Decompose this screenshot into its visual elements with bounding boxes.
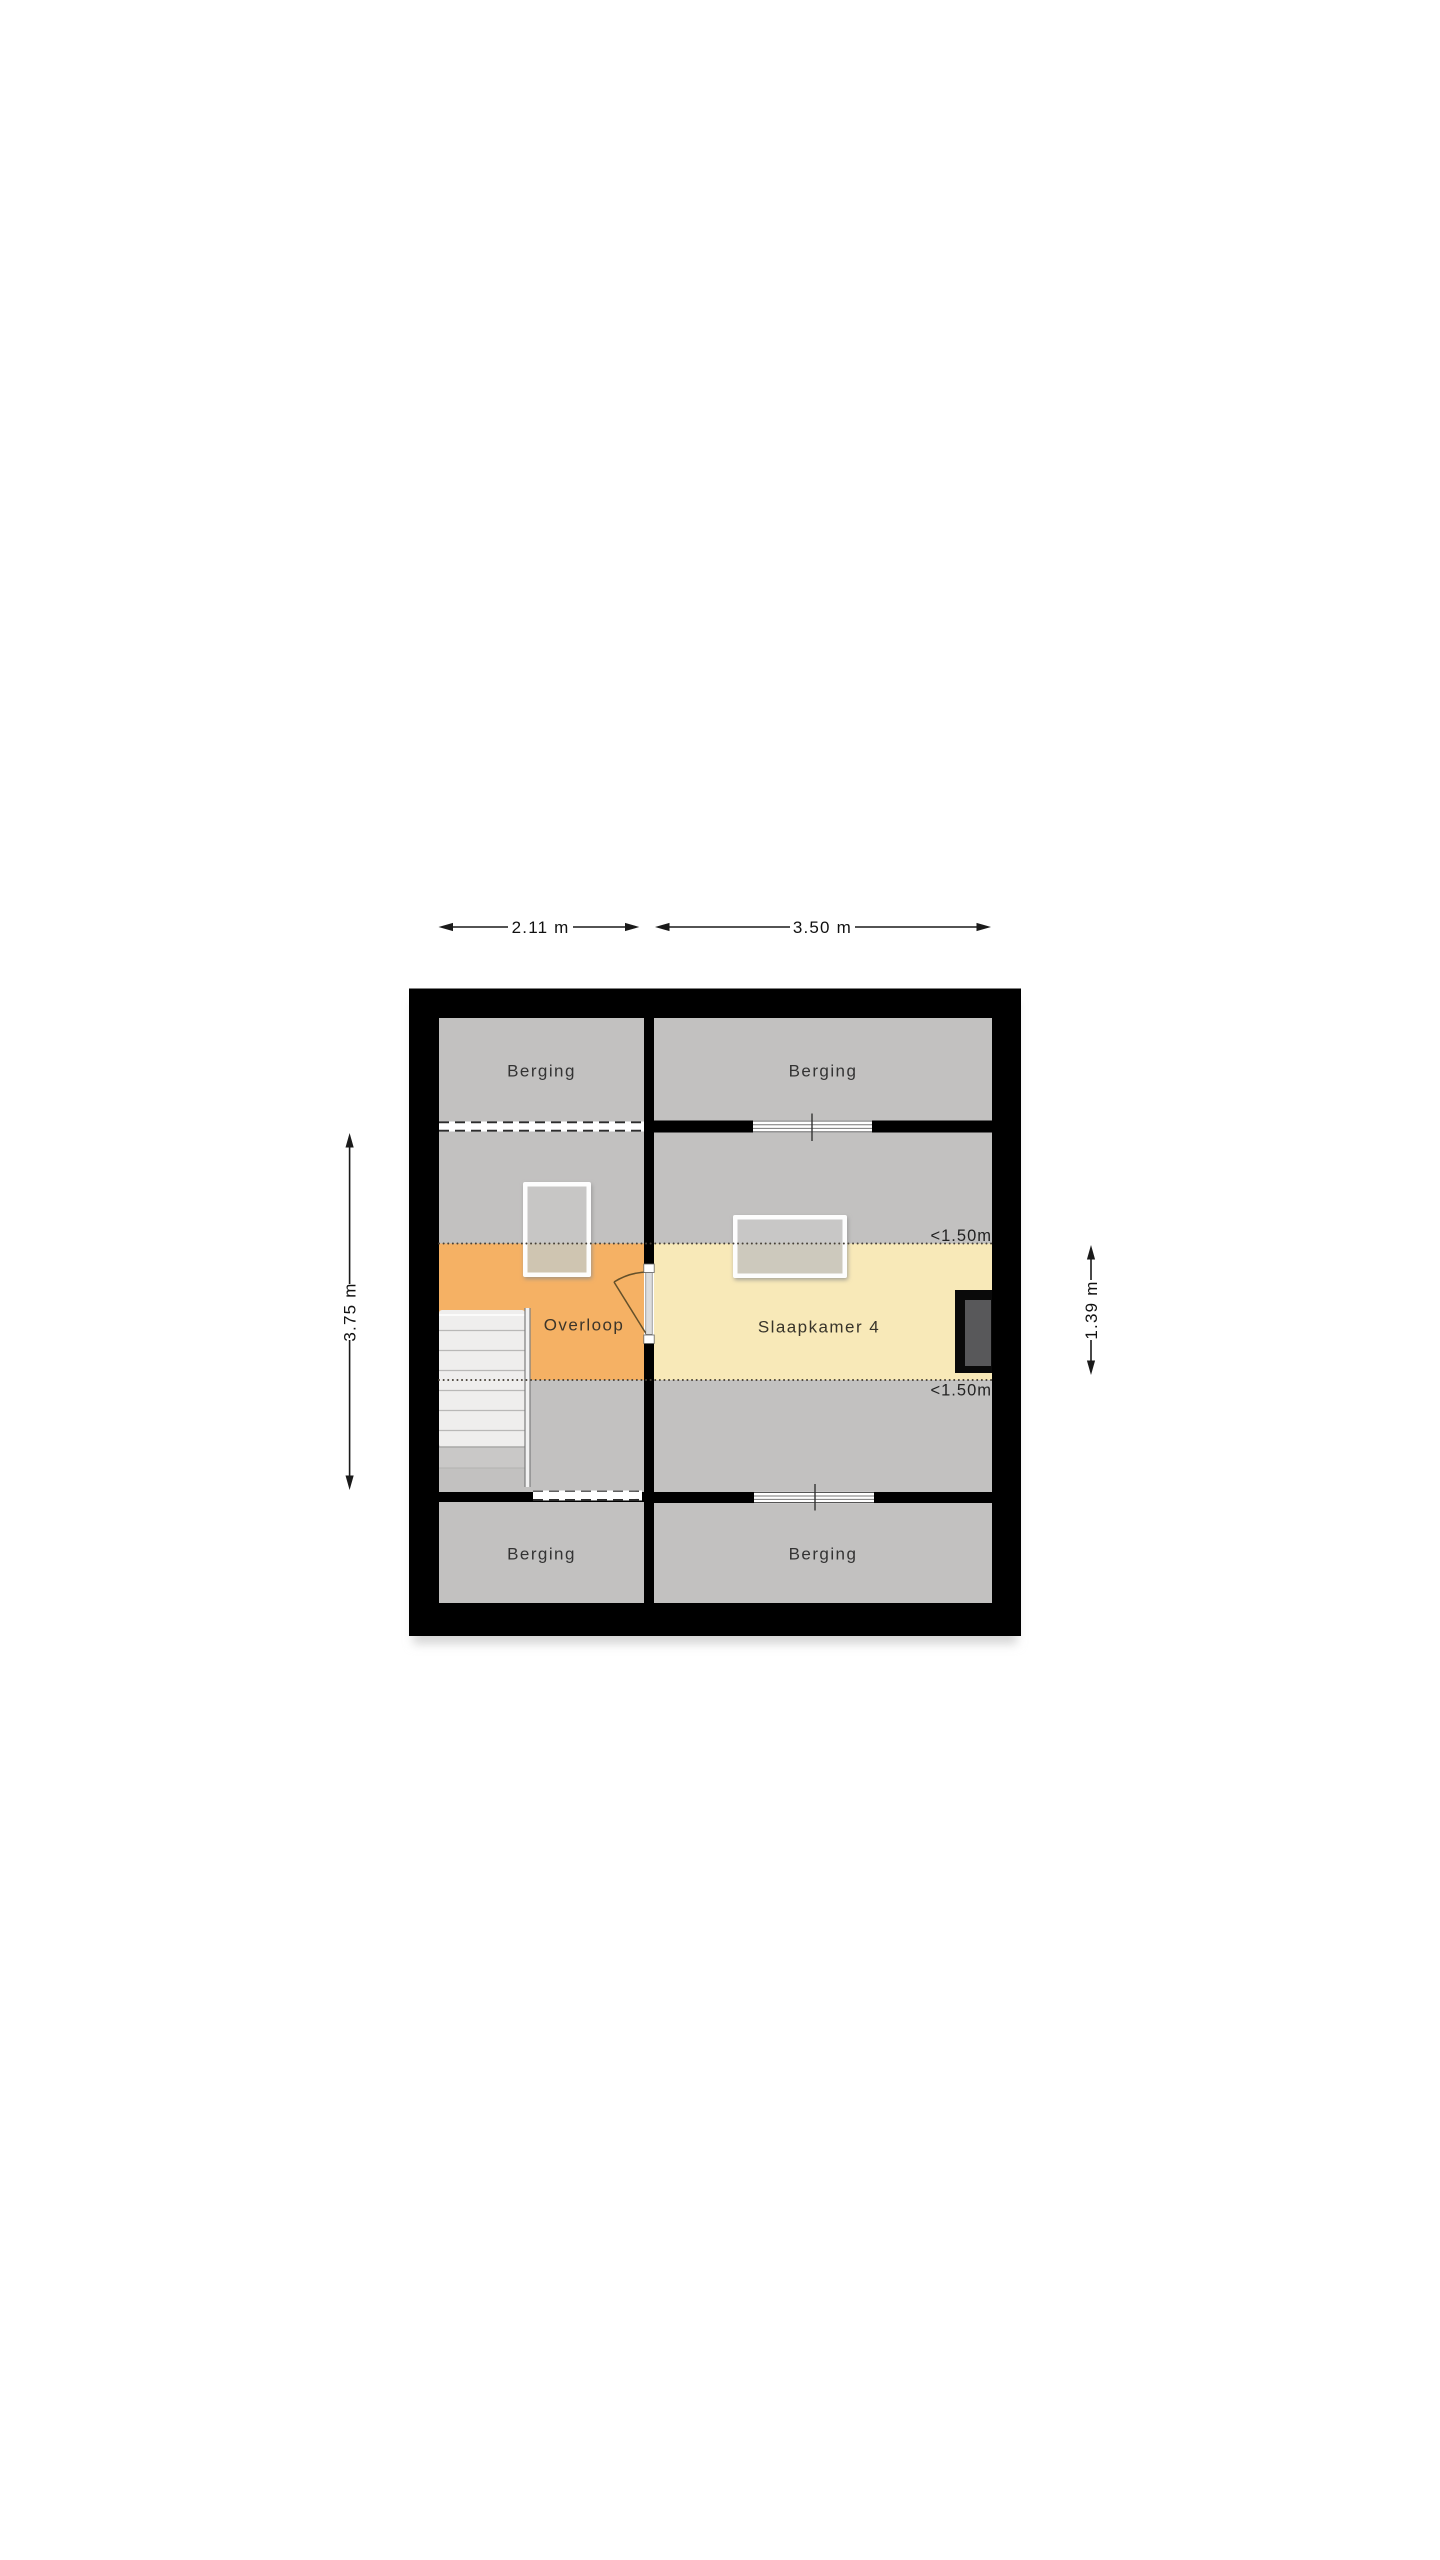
svg-text:Berging: Berging [507, 1062, 576, 1081]
svg-text:<1.50m: <1.50m [931, 1227, 993, 1245]
svg-text:Overloop: Overloop [544, 1316, 625, 1335]
svg-text:Slaapkamer 4: Slaapkamer 4 [758, 1318, 880, 1337]
svg-text:1.39 m: 1.39 m [1082, 1280, 1101, 1339]
svg-text:Berging: Berging [789, 1545, 858, 1564]
svg-text:2.11 m: 2.11 m [512, 918, 570, 937]
svg-text:<1.50m: <1.50m [931, 1382, 993, 1400]
svg-text:3.75 m: 3.75 m [341, 1282, 360, 1341]
svg-text:3.50 m: 3.50 m [793, 918, 852, 937]
svg-text:Berging: Berging [507, 1545, 576, 1564]
svg-text:Berging: Berging [789, 1062, 858, 1081]
